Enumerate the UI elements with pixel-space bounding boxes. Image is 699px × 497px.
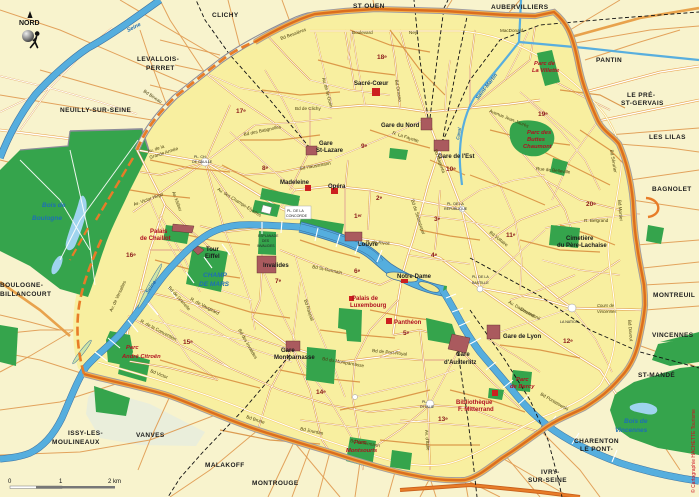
svg-text:2 km: 2 km [108, 479, 121, 485]
svg-text:Montsouris: Montsouris [346, 448, 378, 454]
svg-text:NEUILLY-SUR-SEINE: NEUILLY-SUR-SEINE [60, 107, 131, 114]
svg-text:Bd de Clichy: Bd de Clichy [295, 106, 321, 111]
svg-text:Gare de Lyon: Gare de Lyon [503, 334, 541, 340]
svg-text:R. Belgrand: R. Belgrand [584, 218, 609, 223]
svg-text:CHAMP: CHAMP [203, 272, 227, 279]
svg-text:DES: DES [262, 239, 270, 243]
svg-text:d'Austerlitz: d'Austerlitz [444, 360, 476, 366]
svg-text:Buttes: Buttes [527, 137, 546, 143]
svg-text:Boulogne: Boulogne [32, 215, 62, 222]
svg-text:Sacré-Cœur: Sacré-Cœur [354, 81, 389, 87]
svg-text:RÉPUBLIQUE: RÉPUBLIQUE [444, 206, 468, 211]
svg-text:PL. DE LA: PL. DE LA [447, 202, 464, 206]
svg-text:Parc: Parc [516, 377, 529, 383]
svg-text:PERRET: PERRET [146, 65, 175, 72]
svg-text:Cimetière: Cimetière [566, 236, 594, 242]
svg-text:PL. CH.: PL. CH. [194, 155, 207, 159]
svg-text:MONTROUGE: MONTROUGE [252, 480, 299, 487]
svg-text:Gare: Gare [281, 348, 295, 354]
svg-text:MALAKOFF: MALAKOFF [205, 462, 245, 469]
svg-text:de Bercy: de Bercy [510, 384, 535, 390]
svg-text:ST OUEN: ST OUEN [353, 3, 385, 10]
svg-text:Panthéon: Panthéon [394, 320, 422, 326]
svg-text:de Chaillot: de Chaillot [140, 236, 171, 242]
svg-text:© Cartographie HACHETTE Touris: © Cartographie HACHETTE Tourisme [690, 409, 697, 493]
svg-text:Parc: Parc [126, 345, 139, 351]
svg-text:Gare de l'Est: Gare de l'Est [438, 154, 474, 160]
svg-text:Parc de: Parc de [534, 61, 556, 67]
svg-text:ESPLANADE: ESPLANADE [258, 234, 279, 238]
svg-text:Vincennes: Vincennes [615, 427, 648, 434]
svg-text:D'ITALIE: D'ITALIE [420, 405, 435, 409]
svg-text:VANVES: VANVES [136, 432, 165, 439]
svg-text:ISSY-LES-: ISSY-LES- [68, 430, 103, 437]
svg-text:ST-MANDÉ: ST-MANDÉ [638, 370, 675, 379]
svg-text:BASTILLE: BASTILLE [472, 281, 489, 285]
svg-text:Notre-Dame: Notre-Dame [397, 274, 432, 280]
svg-text:Invalides: Invalides [263, 263, 289, 269]
svg-text:MOULINEAUX: MOULINEAUX [52, 439, 100, 446]
svg-text:Bibliothèque: Bibliothèque [456, 400, 493, 406]
svg-text:PL. DE LA: PL. DE LA [287, 209, 304, 213]
svg-text:La Villette: La Villette [532, 68, 560, 74]
svg-text:INVALIDES: INVALIDES [257, 244, 275, 248]
svg-text:St-Lazare: St-Lazare [316, 148, 344, 154]
svg-text:PL.: PL. [422, 400, 427, 404]
svg-text:CONCORDE: CONCORDE [286, 214, 308, 218]
svg-text:du Père-Lachaise: du Père-Lachaise [557, 243, 607, 249]
svg-text:DE GAULLE: DE GAULLE [192, 160, 213, 164]
svg-text:Palais: Palais [150, 229, 168, 235]
svg-text:MONTREUIL: MONTREUIL [653, 292, 695, 299]
svg-text:NORD: NORD [19, 20, 40, 27]
svg-text:Parc des: Parc des [527, 130, 552, 136]
svg-text:VINCENNES: VINCENNES [652, 332, 694, 339]
svg-text:André Citroën: André Citroën [121, 354, 161, 360]
svg-text:Gare du Nord: Gare du Nord [381, 123, 420, 129]
svg-text:Montparnasse: Montparnasse [274, 355, 315, 361]
svg-text:Palais de: Palais de [352, 296, 379, 302]
svg-text:CHARENTON: CHARENTON [574, 438, 619, 445]
svg-text:CLICHY: CLICHY [212, 12, 239, 19]
svg-text:Gare: Gare [319, 141, 333, 147]
svg-text:Vincennes: Vincennes [597, 309, 617, 314]
svg-text:PANTIN: PANTIN [596, 57, 622, 64]
svg-text:Boulevard: Boulevard [352, 30, 373, 35]
svg-text:BAGNOLET: BAGNOLET [652, 186, 692, 193]
svg-text:LA NATION: LA NATION [560, 320, 579, 324]
svg-text:LE PRÉ-: LE PRÉ- [627, 90, 655, 99]
svg-text:Eiffel: Eiffel [205, 254, 220, 260]
svg-text:Luxembourg: Luxembourg [350, 303, 387, 309]
svg-text:Ney: Ney [409, 30, 418, 35]
svg-text:LES LILAS: LES LILAS [649, 134, 686, 141]
svg-text:Chaumont: Chaumont [523, 144, 553, 150]
svg-text:Bois de: Bois de [624, 418, 648, 425]
svg-text:Bois de: Bois de [42, 202, 66, 209]
svg-text:IVRY-: IVRY- [541, 469, 560, 476]
svg-text:PL. DE LA: PL. DE LA [472, 275, 489, 279]
svg-text:Cours de: Cours de [597, 303, 615, 308]
svg-text:DE MARS: DE MARS [199, 281, 230, 288]
svg-text:LEVALLOIS-: LEVALLOIS- [137, 56, 179, 63]
svg-text:Gare: Gare [456, 352, 470, 358]
svg-text:Opéra: Opéra [328, 184, 346, 190]
svg-text:Madeleine: Madeleine [280, 180, 310, 186]
svg-text:MacDonald: MacDonald [500, 28, 524, 33]
svg-text:SUR-SEINE: SUR-SEINE [528, 477, 567, 484]
svg-text:BILLANCOURT: BILLANCOURT [0, 291, 51, 298]
svg-text:AUBERVILLIERS: AUBERVILLIERS [491, 4, 549, 11]
svg-text:LE PONT-: LE PONT- [580, 446, 613, 453]
svg-text:F. Mitterrand: F. Mitterrand [458, 407, 494, 413]
svg-text:ST-GERVAIS: ST-GERVAIS [621, 100, 664, 107]
svg-text:Tour: Tour [206, 247, 220, 253]
svg-text:BOULOGNE-: BOULOGNE- [0, 282, 43, 289]
